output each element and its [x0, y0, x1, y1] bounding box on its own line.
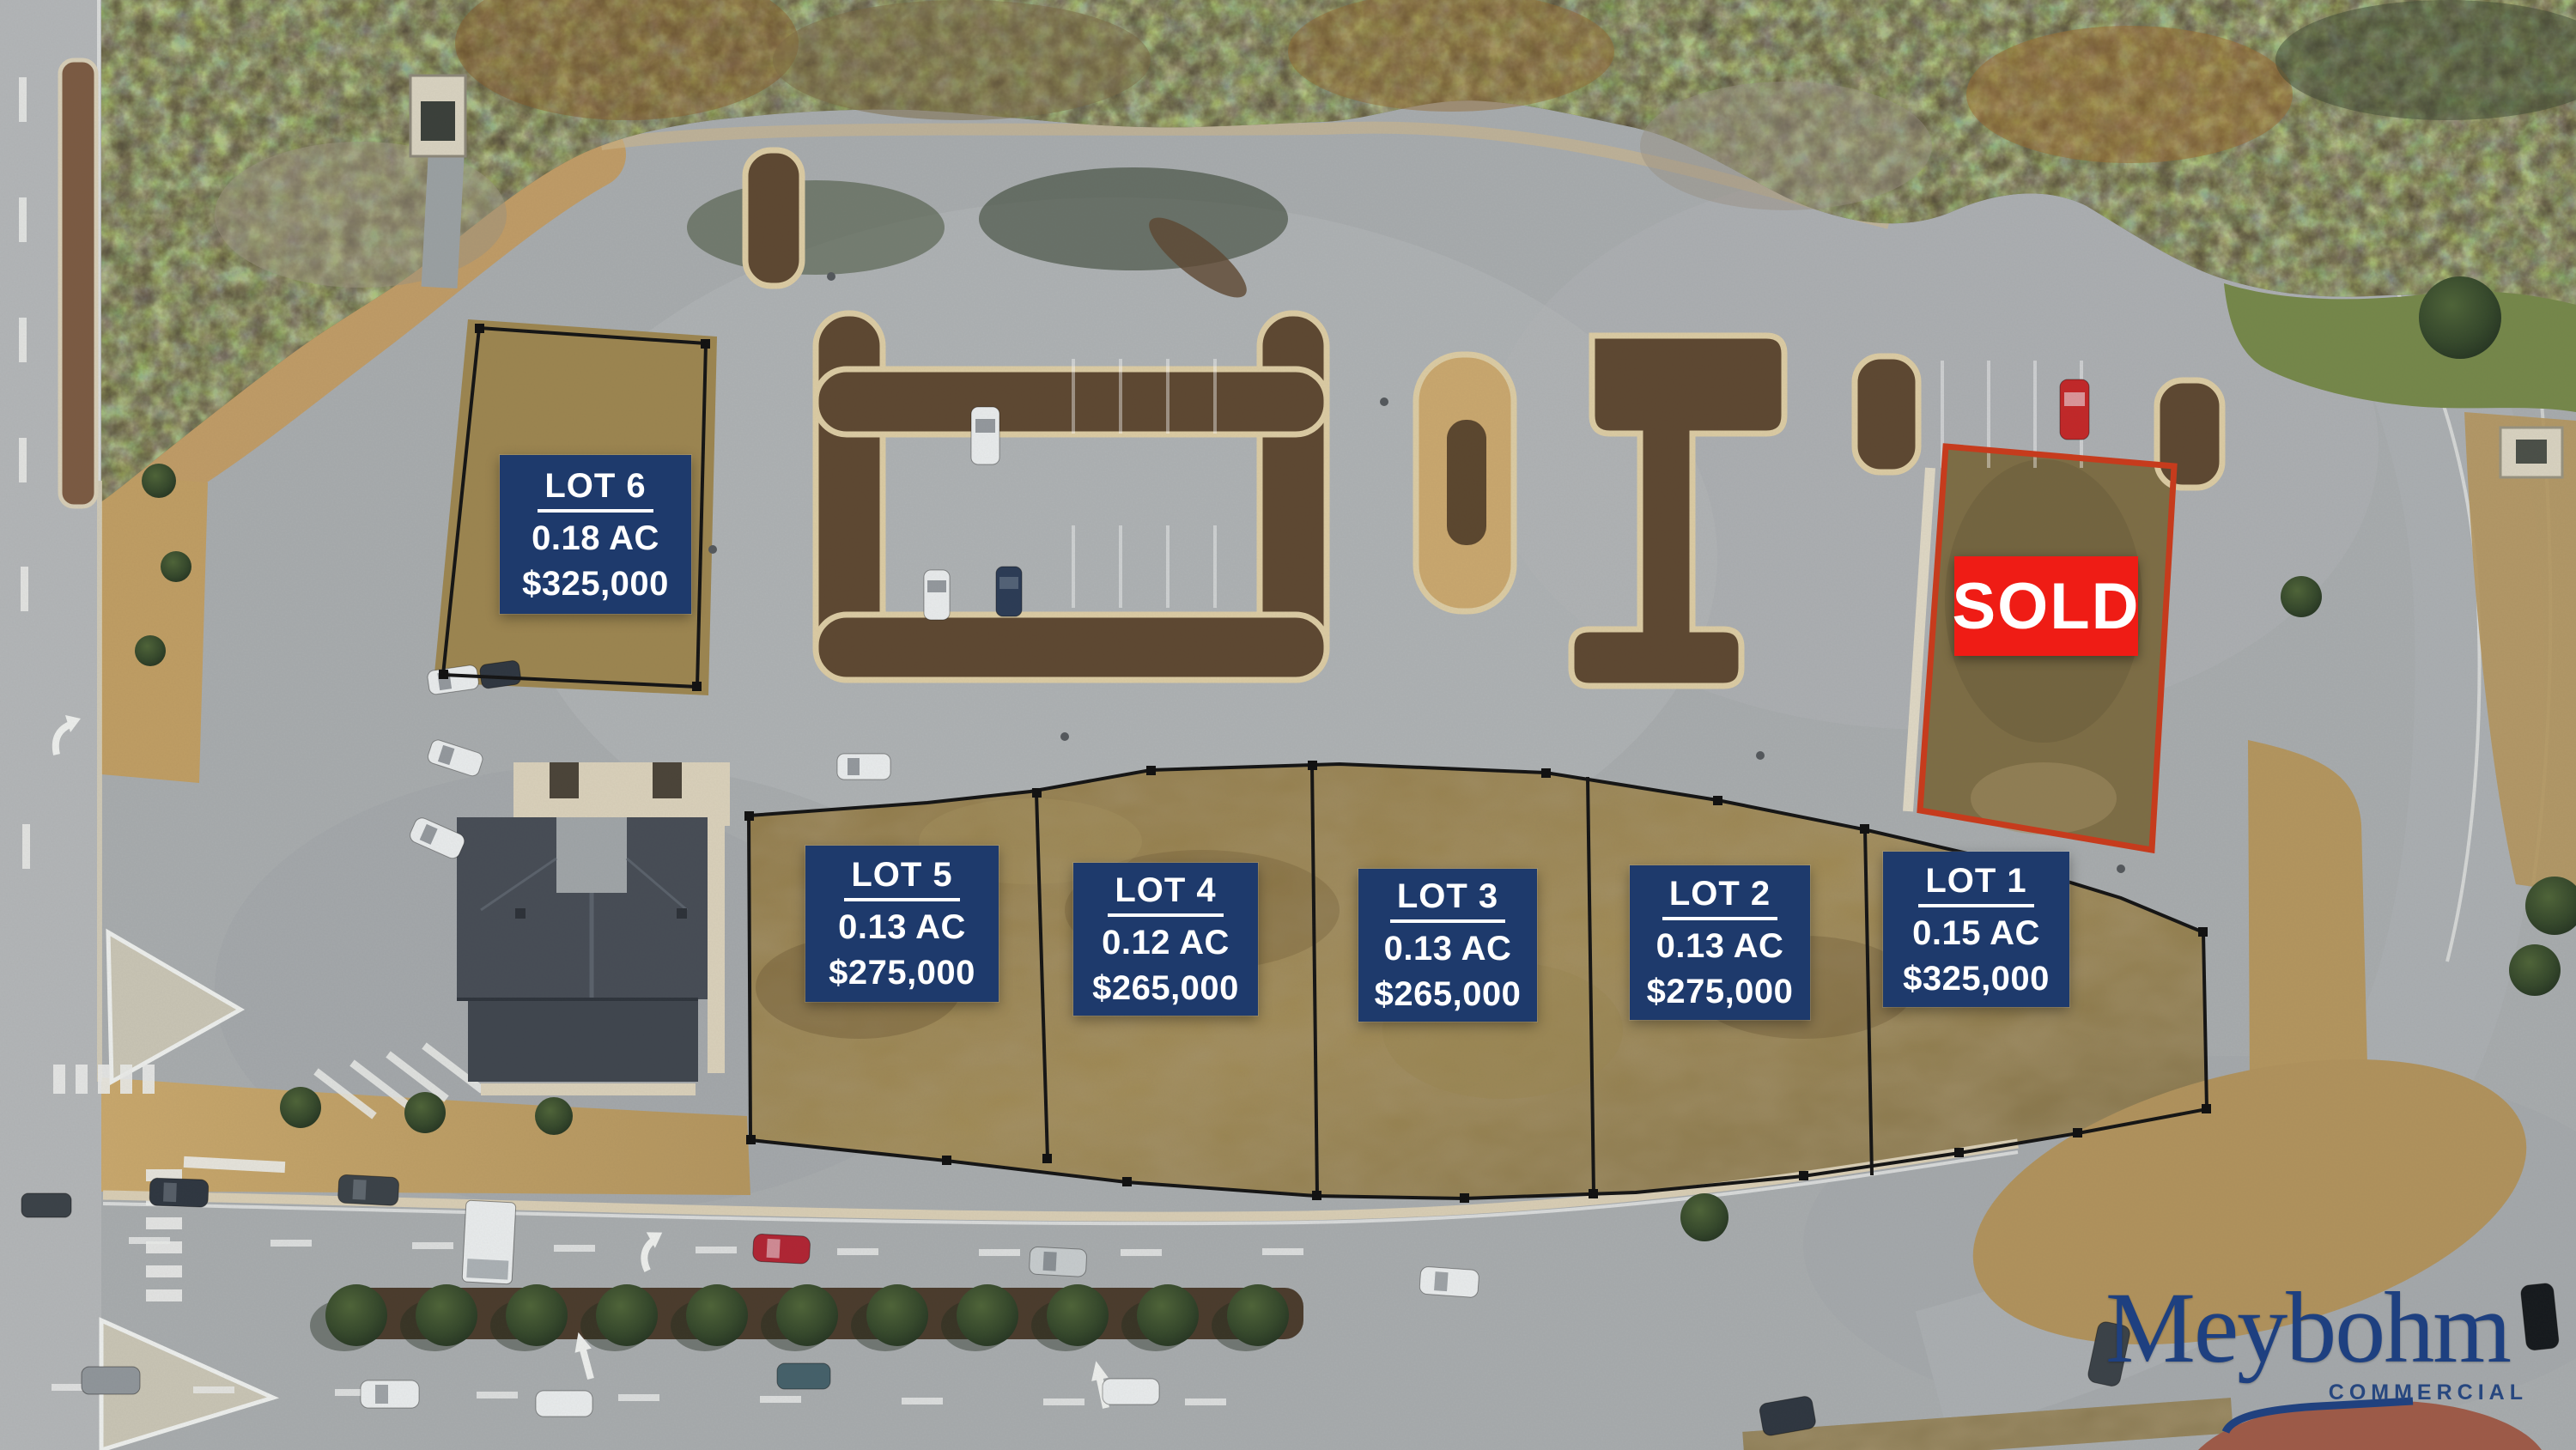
photo-grain	[0, 0, 2576, 1450]
lot-4-area: 0.12 AC	[1102, 923, 1230, 962]
lot-5-label: LOT 5 0.13 AC $275,000	[805, 846, 999, 1002]
lot-3-price: $265,000	[1375, 974, 1522, 1014]
lot-5-name: LOT 5	[844, 855, 959, 901]
lot-3-area: 0.13 AC	[1384, 929, 1512, 968]
lot-4-price: $265,000	[1092, 968, 1239, 1008]
lot-1-area: 0.15 AC	[1912, 913, 2040, 953]
lot-2-label: LOT 2 0.13 AC $275,000	[1630, 865, 1810, 1020]
aerial-photo	[0, 0, 2576, 1450]
lot-6-area: 0.18 AC	[532, 519, 659, 558]
meybohm-logo: Meybohm COMMERCIAL	[2105, 1277, 2552, 1405]
lot-1-label: LOT 1 0.15 AC $325,000	[1883, 852, 2069, 1007]
brand-name: Meybohm	[2105, 1277, 2552, 1379]
lot-5-area: 0.13 AC	[838, 907, 966, 947]
lot-4-name: LOT 4	[1108, 871, 1223, 917]
lot-4-label: LOT 4 0.12 AC $265,000	[1073, 863, 1258, 1016]
aerial-site-plan: LOT 1 0.15 AC $325,000 LOT 2 0.13 AC $27…	[0, 0, 2576, 1450]
lot-6-label: LOT 6 0.18 AC $325,000	[500, 455, 691, 614]
lot-2-area: 0.13 AC	[1656, 926, 1784, 966]
lot-3-label: LOT 3 0.13 AC $265,000	[1358, 869, 1537, 1022]
brand-division: COMMERCIAL	[2105, 1380, 2552, 1405]
lot-6-name: LOT 6	[538, 466, 653, 513]
lot-2-name: LOT 2	[1662, 874, 1777, 920]
lot-5-price: $275,000	[829, 953, 975, 992]
lot-1-price: $325,000	[1903, 959, 2050, 998]
lot-1-name: LOT 1	[1918, 861, 2033, 907]
lot-2-price: $275,000	[1647, 972, 1794, 1011]
sold-badge: SOLD	[1954, 556, 2138, 656]
lot-6-price: $325,000	[522, 564, 669, 604]
lot-3-name: LOT 3	[1390, 877, 1505, 923]
